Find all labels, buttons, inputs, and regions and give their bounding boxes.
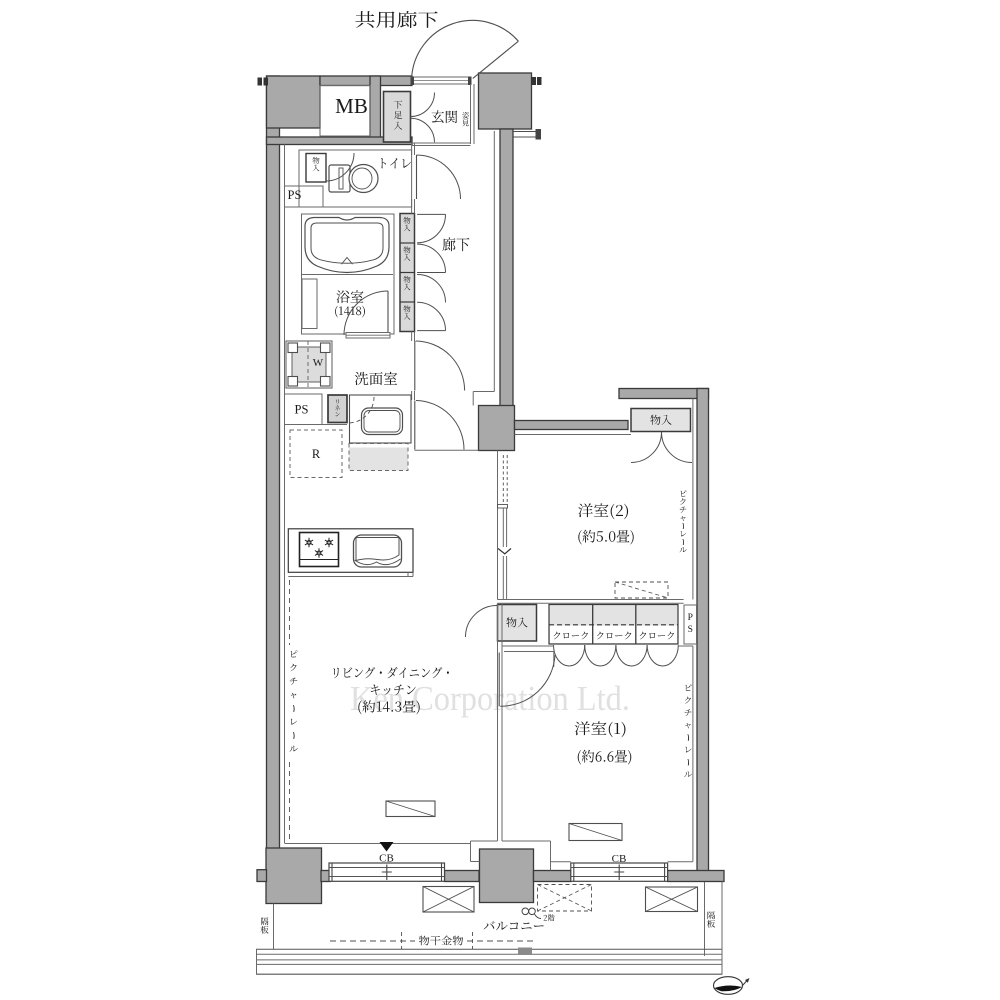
svg-text:Ken Corporation Ltd.: Ken Corporation Ltd. bbox=[350, 679, 630, 718]
svg-text:MB: MB bbox=[335, 94, 368, 118]
svg-text:S: S bbox=[688, 625, 693, 635]
svg-text:PS: PS bbox=[295, 403, 309, 417]
svg-text:PS: PS bbox=[288, 188, 302, 202]
svg-text:P: P bbox=[688, 613, 693, 623]
svg-text:W: W bbox=[313, 357, 324, 369]
svg-text:R: R bbox=[312, 447, 321, 461]
